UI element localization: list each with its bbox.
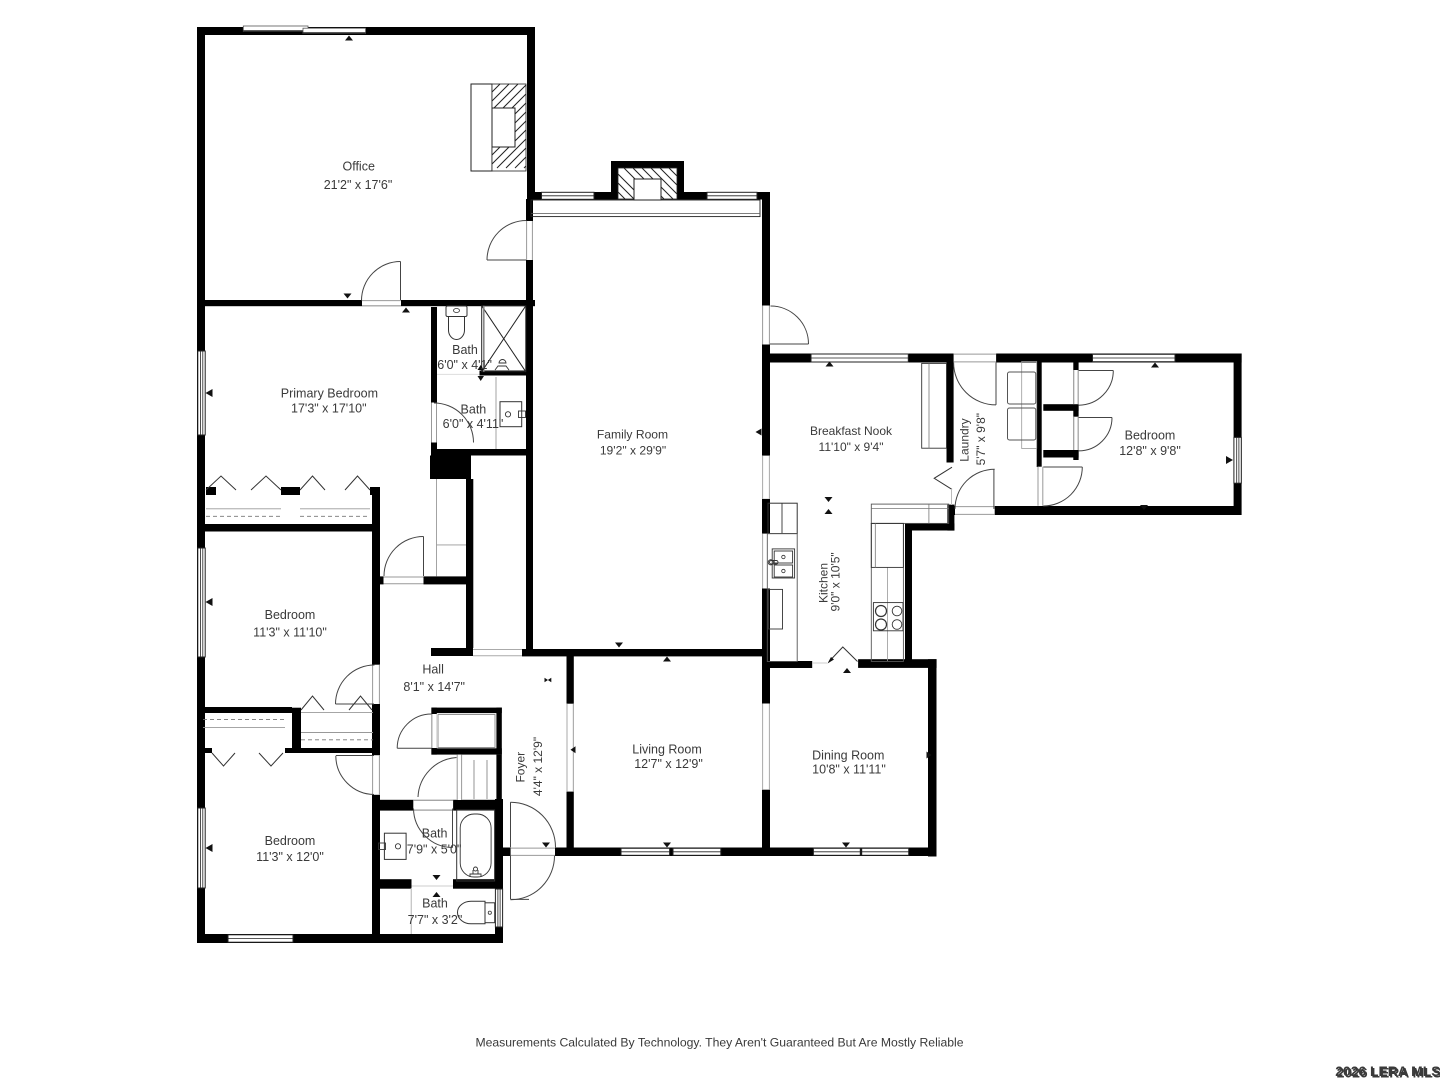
svg-text:8'1" x 14'7": 8'1" x 14'7" — [403, 680, 465, 694]
svg-text:Bath: Bath — [422, 827, 448, 841]
svg-text:Primary Bedroom: Primary Bedroom — [281, 386, 378, 400]
svg-text:Measurements Calculated By Tec: Measurements Calculated By Technology. T… — [475, 1036, 963, 1050]
svg-text:Hall: Hall — [422, 663, 444, 677]
svg-text:Bath: Bath — [461, 403, 487, 417]
svg-text:12'7" x 12'9": 12'7" x 12'9" — [634, 757, 703, 771]
svg-text:Laundry: Laundry — [957, 418, 971, 461]
svg-text:5'7" x 9'8": 5'7" x 9'8" — [974, 413, 988, 465]
svg-text:11'3" x 11'10": 11'3" x 11'10" — [253, 626, 327, 640]
svg-text:Bedroom: Bedroom — [265, 608, 316, 622]
svg-text:Bedroom: Bedroom — [265, 834, 316, 848]
svg-text:21'2" x 17'6": 21'2" x 17'6" — [324, 178, 393, 192]
svg-text:Foyer: Foyer — [514, 752, 528, 783]
svg-text:Bath: Bath — [452, 343, 478, 357]
svg-text:19'2" x 29'9": 19'2" x 29'9" — [600, 443, 666, 457]
svg-text:11'10" x 9'4": 11'10" x 9'4" — [819, 440, 884, 454]
svg-text:7'9" x 5'0": 7'9" x 5'0" — [407, 842, 462, 856]
svg-text:4'4" x 12'9": 4'4" x 12'9" — [531, 737, 545, 796]
svg-text:6'0" x 4'1": 6'0" x 4'1" — [437, 358, 492, 372]
svg-text:9'0" x 10'5": 9'0" x 10'5" — [828, 552, 842, 611]
svg-text:7'7" x 3'2": 7'7" x 3'2" — [408, 913, 463, 927]
svg-text:10'8" x 11'11": 10'8" x 11'11" — [812, 762, 886, 776]
svg-text:Living Room: Living Room — [632, 742, 701, 756]
svg-text:Office: Office — [342, 160, 374, 174]
svg-text:11'3" x 12'0": 11'3" x 12'0" — [256, 850, 324, 864]
svg-text:Bath: Bath — [422, 897, 448, 911]
svg-text:2026 LERA MLS: 2026 LERA MLS — [1335, 1063, 1440, 1079]
svg-text:17'3" x 17'10": 17'3" x 17'10" — [291, 401, 367, 415]
svg-text:Bedroom: Bedroom — [1125, 429, 1176, 443]
svg-text:Family Room: Family Room — [597, 427, 668, 441]
svg-text:Dining Room: Dining Room — [812, 749, 884, 763]
svg-text:12'8" x 9'8": 12'8" x 9'8" — [1119, 444, 1181, 458]
svg-text:Breakfast Nook: Breakfast Nook — [810, 424, 893, 438]
svg-text:6'0" x 4'11": 6'0" x 4'11" — [443, 417, 504, 431]
